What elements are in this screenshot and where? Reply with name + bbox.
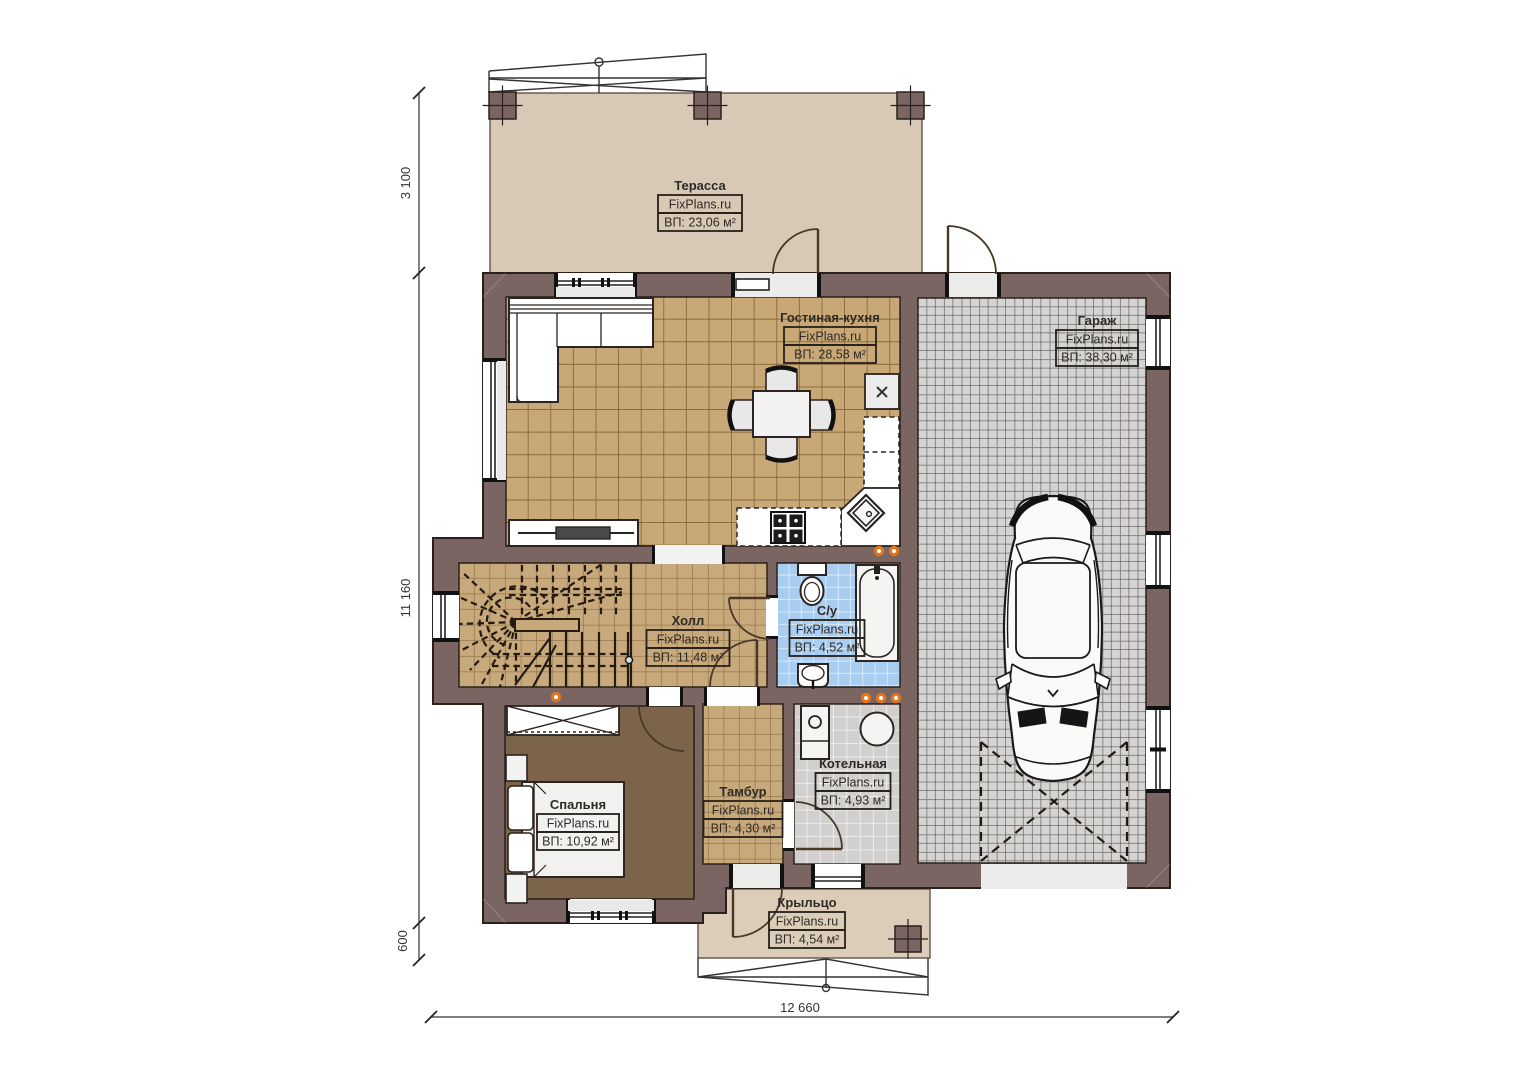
- svg-text:Гостиная-кухня: Гостиная-кухня: [780, 310, 880, 325]
- svg-text:Котельная: Котельная: [819, 756, 887, 771]
- svg-text:FixPlans.ru: FixPlans.ru: [547, 817, 610, 831]
- svg-text:С/у: С/у: [817, 603, 838, 618]
- svg-text:FixPlans.ru: FixPlans.ru: [776, 915, 839, 929]
- svg-text:FixPlans.ru: FixPlans.ru: [796, 623, 859, 637]
- svg-text:FixPlans.ru: FixPlans.ru: [669, 198, 732, 212]
- svg-text:600: 600: [395, 930, 410, 952]
- svg-text:ВП: 23,06 м²: ВП: 23,06 м²: [664, 216, 736, 230]
- svg-text:ВП: 4,93 м²: ВП: 4,93 м²: [821, 794, 886, 808]
- svg-text:Спальня: Спальня: [550, 797, 606, 812]
- svg-text:Холл: Холл: [672, 613, 705, 628]
- svg-text:ВП: 11,48 м²: ВП: 11,48 м²: [653, 651, 724, 665]
- svg-text:11 160: 11 160: [398, 579, 413, 618]
- svg-text:ВП: 10,92 м²: ВП: 10,92 м²: [542, 835, 614, 849]
- svg-text:Терасса: Терасса: [674, 178, 726, 193]
- svg-text:ВП: 4,30 м²: ВП: 4,30 м²: [711, 822, 776, 836]
- svg-text:FixPlans.ru: FixPlans.ru: [657, 633, 720, 647]
- svg-text:FixPlans.ru: FixPlans.ru: [799, 330, 862, 344]
- svg-text:Тамбур: Тамбур: [719, 784, 766, 799]
- svg-text:ВП: 38,30 м²: ВП: 38,30 м²: [1061, 351, 1133, 365]
- svg-text:12 660: 12 660: [780, 1000, 820, 1015]
- svg-text:Крыльцо: Крыльцо: [777, 895, 836, 910]
- svg-text:3 100: 3 100: [398, 167, 413, 200]
- svg-text:ВП: 4,54 м²: ВП: 4,54 м²: [775, 933, 840, 947]
- svg-text:FixPlans.ru: FixPlans.ru: [712, 804, 775, 818]
- svg-text:Гараж: Гараж: [1078, 313, 1118, 328]
- svg-text:ВП: 4,52 м²: ВП: 4,52 м²: [795, 641, 860, 655]
- svg-text:FixPlans.ru: FixPlans.ru: [822, 776, 885, 790]
- svg-text:ВП: 28,58 м²: ВП: 28,58 м²: [794, 348, 866, 362]
- svg-text:FixPlans.ru: FixPlans.ru: [1066, 333, 1129, 347]
